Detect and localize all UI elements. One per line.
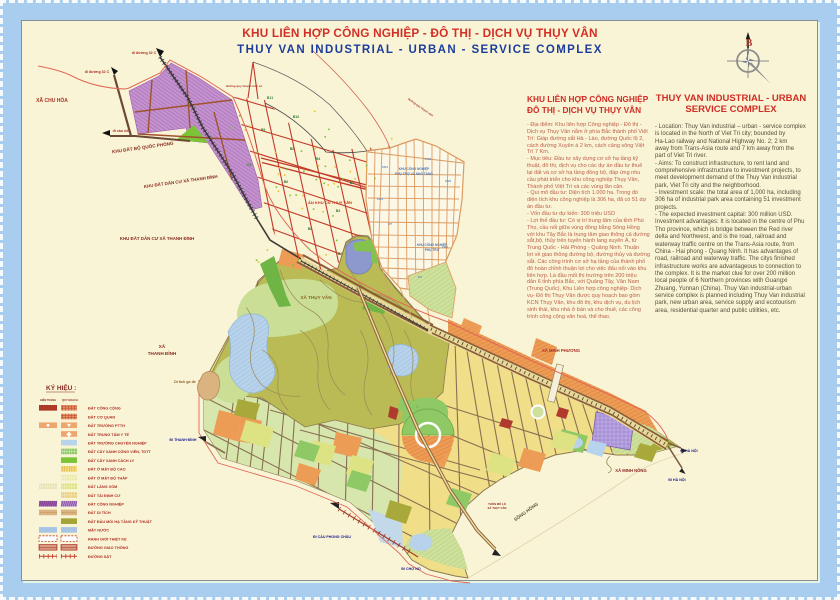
svg-text:B7: B7 [338, 252, 343, 256]
svg-text:ẤN KHU CN THỤY VÂN: ẤN KHU CN THỤY VÂN [308, 200, 352, 205]
svg-text:ĐẤT Ở MẬT ĐỘ THẤP: ĐẤT Ở MẬT ĐỘ THẤP [88, 475, 128, 480]
svg-text:đường quy hoạch mới số: đường quy hoạch mới số [226, 84, 263, 88]
svg-text:ĐƯỜNG SẮT: ĐƯỜNG SẮT [88, 554, 112, 559]
svg-text:ĐẤT ĐẦU MỐI HẠ TẦNG KỸ THUẬT: ĐẤT ĐẦU MỐI HẠ TẦNG KỸ THUẬT [88, 519, 153, 524]
svg-text:XÃ THỤY VÂN: XÃ THỤY VÂN [300, 294, 332, 300]
svg-text:B9: B9 [261, 128, 266, 132]
svg-text:ĐẤT CÔNG CỘNG: ĐẤT CÔNG CỘNG [88, 406, 121, 411]
svg-text:DV: DV [418, 275, 422, 279]
svg-text:KHO: KHO [425, 157, 432, 161]
svg-text:ĐẤT LÀNG XÓM: ĐẤT LÀNG XÓM [88, 484, 117, 489]
svg-text:CN3: CN3 [442, 245, 448, 249]
svg-text:Di tích gò đe: Di tích gò đe [174, 380, 196, 384]
svg-text:KHU ĐẤT BỘ QUỐC PHÒNG: KHU ĐẤT BỘ QUỐC PHÒNG [111, 139, 174, 155]
svg-text:đường quy hoạch mới: đường quy hoạch mới [407, 97, 434, 118]
svg-text:ĐI CHỢ NỔ: ĐI CHỢ NỔ [401, 566, 420, 571]
svg-text:KÝ HIỆU :: KÝ HIỆU : [46, 383, 76, 392]
svg-text:B4: B4 [316, 157, 321, 161]
svg-text:HIỆN TRẠNG: HIỆN TRẠNG [40, 397, 56, 402]
svg-text:CN1: CN1 [382, 165, 388, 169]
svg-text:ĐẤT Ở MẬT ĐỘ CAO: ĐẤT Ở MẬT ĐỘ CAO [88, 467, 126, 472]
svg-text:CN2: CN2 [445, 179, 451, 183]
svg-text:KHU ĐẤT DÂN CƯ XÃ THANH ĐÌNH: KHU ĐẤT DÂN CƯ XÃ THANH ĐÌNH [144, 174, 218, 189]
svg-text:XÃ MINH PHƯƠNG: XÃ MINH PHƯƠNG [542, 348, 580, 353]
svg-text:CN4: CN4 [377, 197, 383, 201]
svg-text:SÔNG HỒNG: SÔNG HỒNG [512, 499, 540, 522]
svg-text:ĐI THANH ĐÌNH: ĐI THANH ĐÌNH [170, 437, 197, 442]
svg-text:ĐẤT CÂY XANH CÔNG VIÊN, TDTT: ĐẤT CÂY XANH CÔNG VIÊN, TDTT [88, 449, 151, 454]
svg-text:RANH GIỚI THIẾT KẾ: RANH GIỚI THIẾT KẾ [88, 536, 127, 541]
svg-text:ĐI HÀ NỘI: ĐI HÀ NỘI [668, 477, 685, 482]
svg-text:ĐẤT DI TÍCH: ĐẤT DI TÍCH [88, 510, 111, 515]
svg-text:XÃ THỤY VÂN: XÃ THỤY VÂN [488, 505, 507, 510]
svg-text:đi đường 32 C: đi đường 32 C [85, 70, 110, 74]
svg-text:B5: B5 [290, 147, 295, 151]
svg-text:KHU ĐẤT DÂN CƯ XÃ THANH ĐÌNH: KHU ĐẤT DÂN CƯ XÃ THANH ĐÌNH [120, 236, 194, 241]
svg-text:KT: KT [388, 222, 392, 226]
svg-text:ĐẤT TRƯỜNG CHUYÊN NGHIỆP: ĐẤT TRƯỜNG CHUYÊN NGHIỆP [88, 440, 147, 445]
svg-text:ĐẤT CƠ QUAN: ĐẤT CƠ QUAN [88, 415, 115, 419]
svg-text:B3: B3 [336, 209, 341, 213]
svg-text:ĐI CẦU PHONG CHÂU: ĐI CẦU PHONG CHÂU [313, 534, 351, 539]
svg-text:MẶT NƯỚC: MẶT NƯỚC [88, 528, 109, 533]
svg-text:ĐẤT TÁI ĐỊNH CƯ: ĐẤT TÁI ĐỊNH CƯ [88, 493, 121, 498]
svg-text:B2: B2 [350, 181, 355, 185]
svg-text:B8: B8 [308, 227, 313, 231]
svg-text:XÃ CHU HÓA: XÃ CHU HÓA [36, 96, 68, 104]
svg-text:QUY HOẠCH: QUY HOẠCH [62, 398, 78, 402]
svg-text:ĐẤT CÔNG NGHIỆP: ĐẤT CÔNG NGHIỆP [88, 502, 124, 507]
svg-text:XÃ: XÃ [159, 343, 166, 349]
svg-text:B6: B6 [284, 180, 289, 184]
svg-text:ĐƯỜNG GIAO THÔNG: ĐƯỜNG GIAO THÔNG [88, 545, 128, 550]
svg-text:ĐẤT TRUNG TÂM Y TẾ: ĐẤT TRUNG TÂM Y TẾ [88, 432, 129, 437]
svg-text:XÃ MINH NÔNG: XÃ MINH NÔNG [615, 468, 646, 473]
svg-text:B11: B11 [267, 96, 273, 100]
svg-text:B10: B10 [293, 115, 300, 119]
svg-text:PHỤ TRỢ: PHỤ TRỢ [425, 248, 440, 252]
svg-text:ĐI HÀ NỘI: ĐI HÀ NỘI [680, 448, 697, 453]
svg-text:KHU CÔNG NGHIỆP: KHU CÔNG NGHIỆP [399, 166, 430, 171]
svg-text:PHỤ TRỢ VÀ KHO TÀNG: PHỤ TRỢ VÀ KHO TÀNG [395, 171, 433, 176]
svg-text:ĐẤT TRƯỜNG PTTH: ĐẤT TRƯỜNG PTTH [88, 423, 125, 428]
svg-text:đi cầu nổi: đi cầu nổi [113, 129, 130, 133]
svg-text:ĐẤT CÂY XANH CÁCH LY: ĐẤT CÂY XANH CÁCH LY [88, 458, 135, 463]
svg-text:THANH ĐÌNH: THANH ĐÌNH [148, 349, 177, 356]
svg-text:CX: CX [247, 163, 253, 167]
